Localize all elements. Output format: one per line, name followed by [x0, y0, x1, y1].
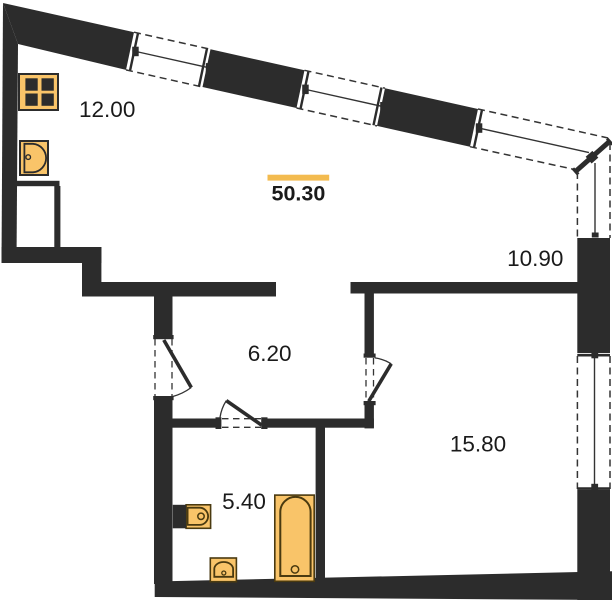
- svg-text:15.80: 15.80: [450, 431, 506, 456]
- svg-text:50.30: 50.30: [271, 182, 325, 206]
- svg-text:10.90: 10.90: [507, 246, 563, 271]
- svg-text:6.20: 6.20: [248, 341, 292, 366]
- svg-text:5.40: 5.40: [222, 489, 266, 514]
- svg-text:12.00: 12.00: [79, 97, 135, 122]
